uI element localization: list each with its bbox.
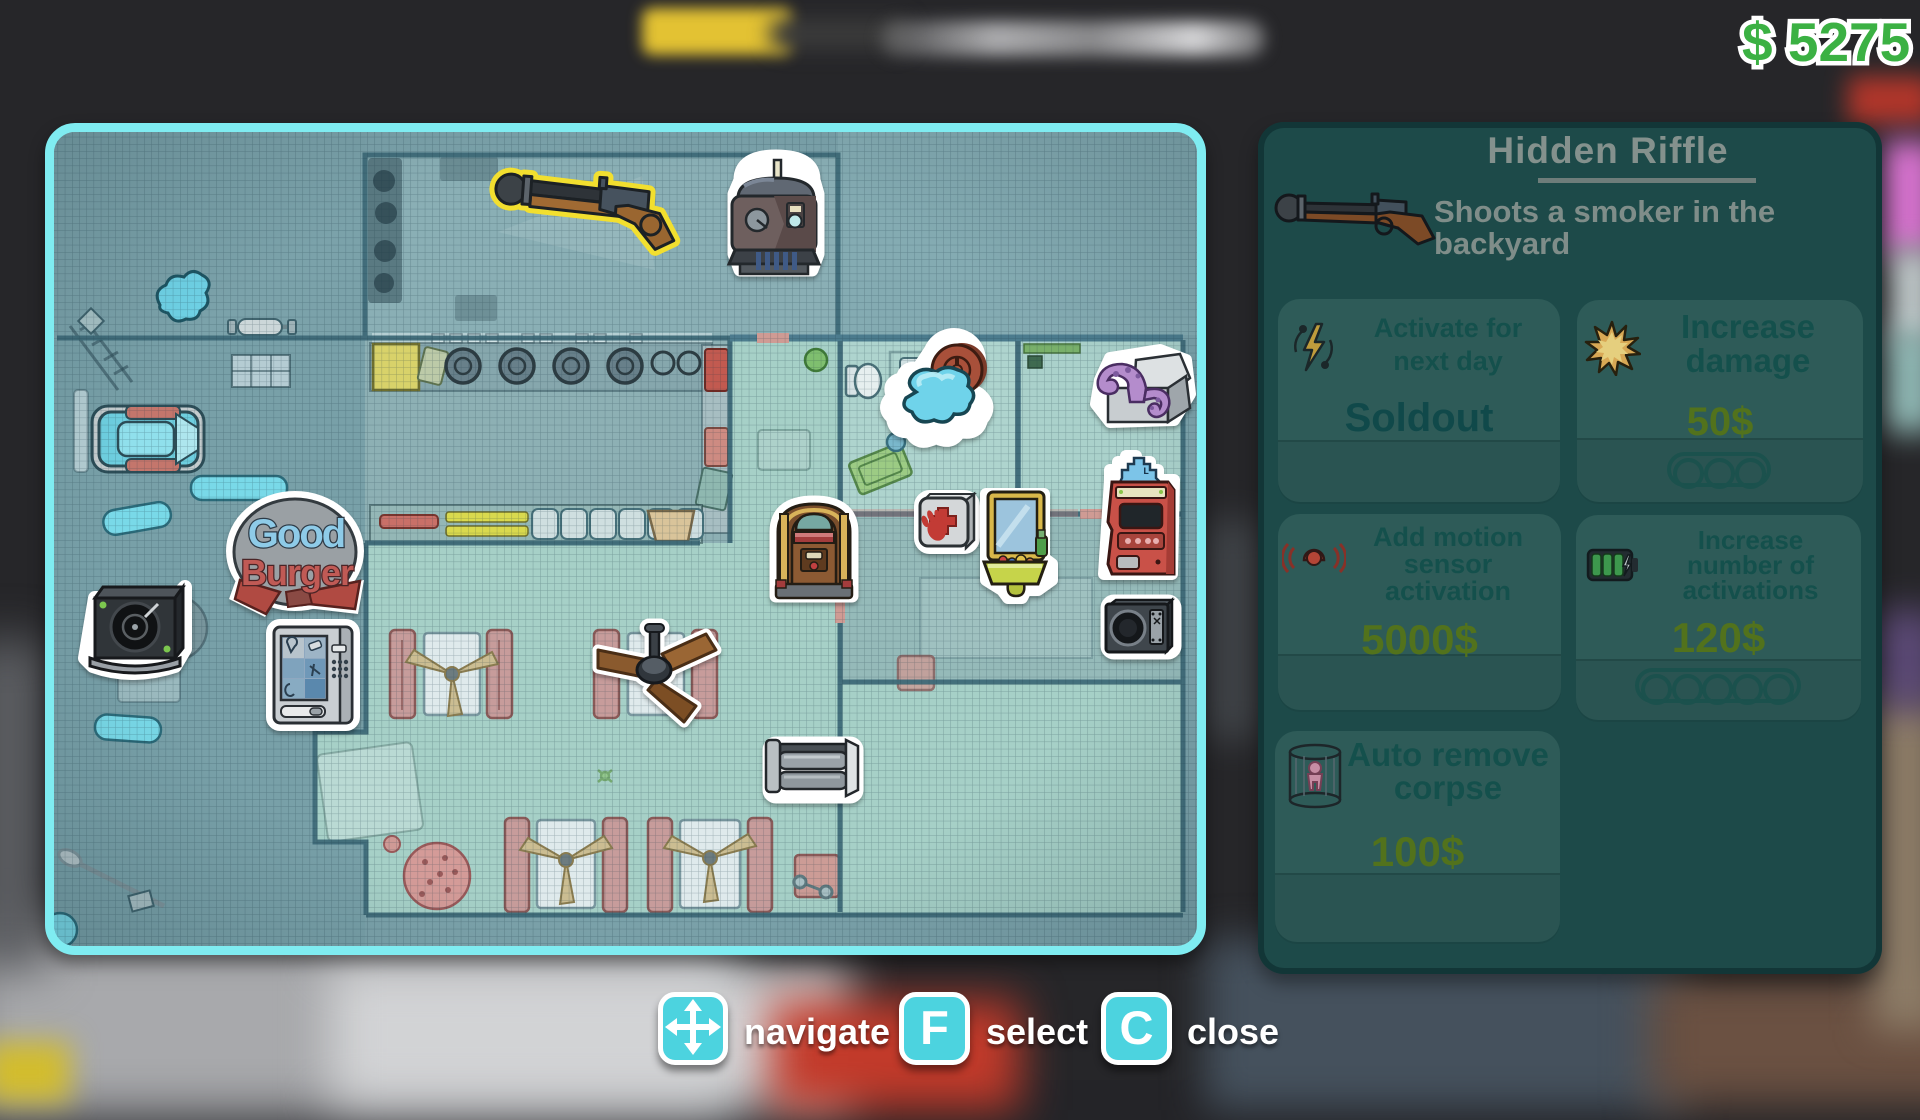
svg-text:Good: Good	[248, 512, 344, 556]
svg-text:Burger: Burger	[241, 552, 354, 593]
svg-text:$ 5275: $ 5275	[1742, 11, 1910, 73]
svg-text:L: L	[1143, 467, 1149, 478]
